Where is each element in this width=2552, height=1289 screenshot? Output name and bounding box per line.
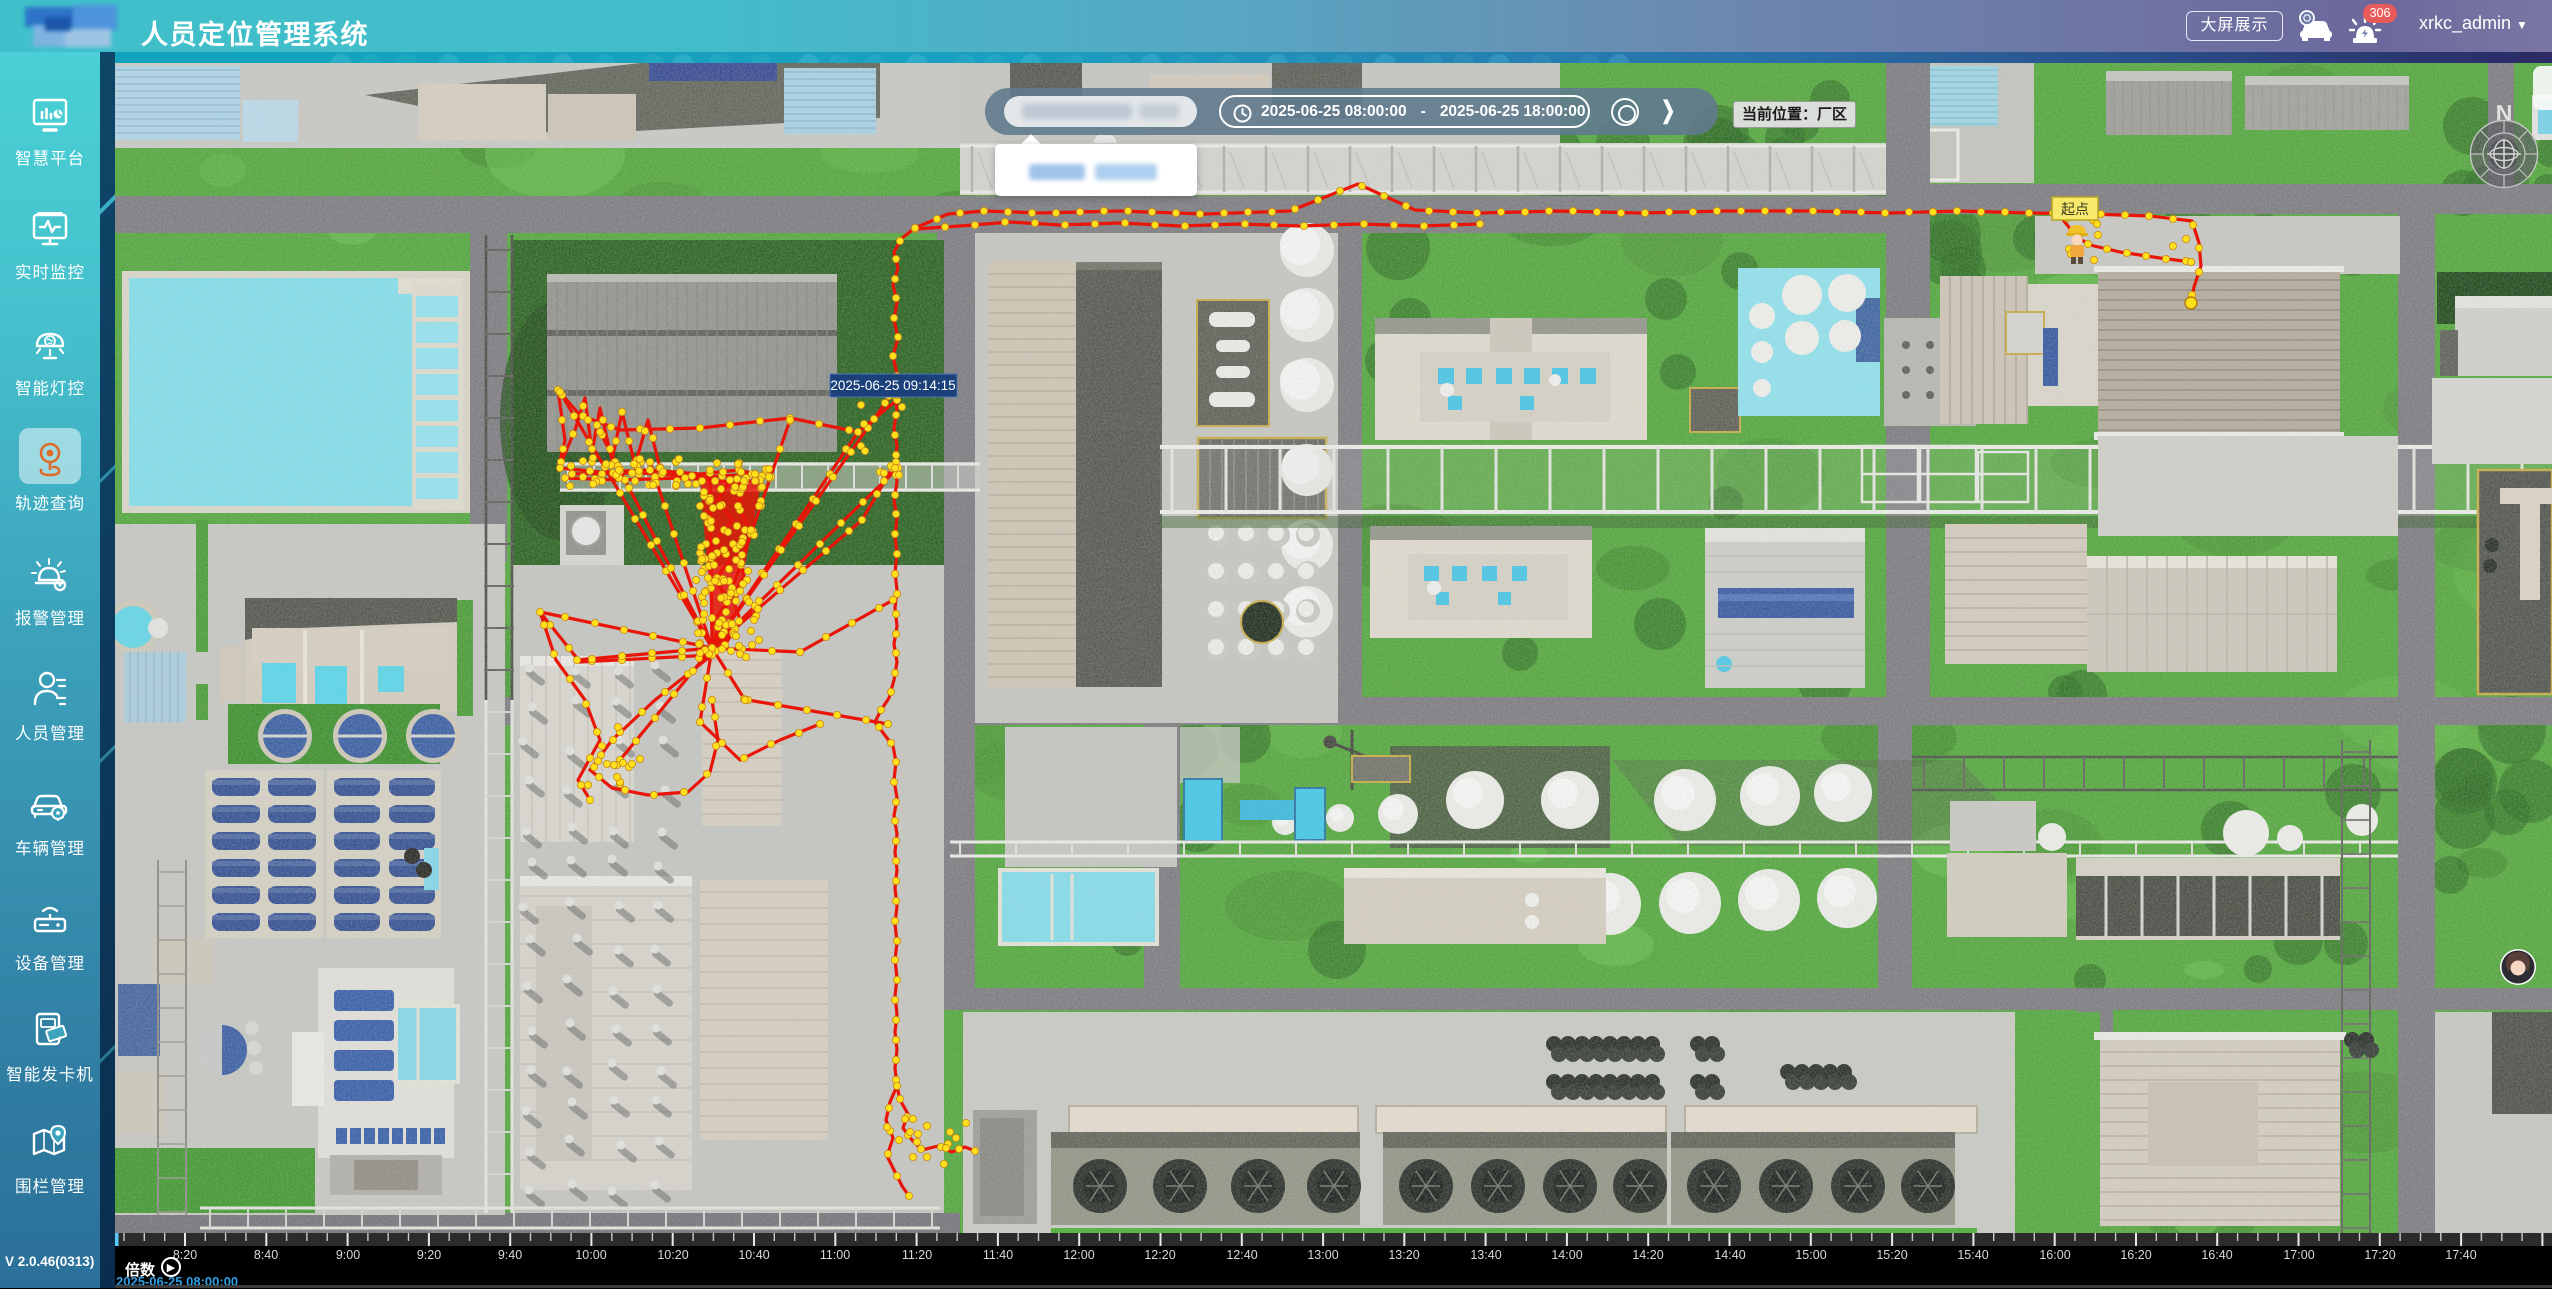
svg-text:起点: 起点 xyxy=(2061,201,2089,217)
svg-text:2025-06-25 09:14:15: 2025-06-25 09:14:15 xyxy=(830,378,955,393)
